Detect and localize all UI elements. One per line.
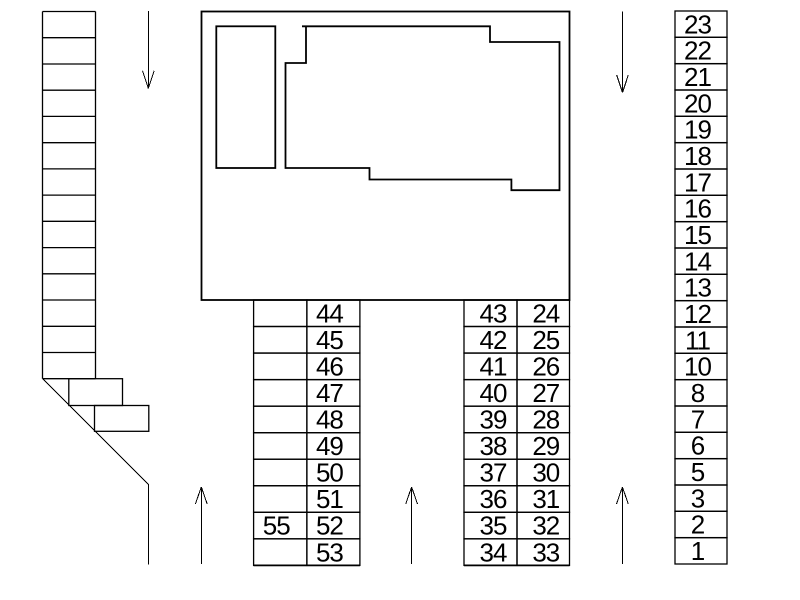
svg-text:41: 41 <box>480 352 507 382</box>
svg-text:36: 36 <box>480 484 507 514</box>
svg-text:32: 32 <box>532 511 559 541</box>
svg-text:47: 47 <box>316 378 343 408</box>
svg-text:49: 49 <box>316 431 343 461</box>
svg-text:34: 34 <box>480 537 507 567</box>
svg-text:42: 42 <box>480 325 507 355</box>
svg-text:1: 1 <box>691 536 705 566</box>
svg-text:26: 26 <box>532 352 559 382</box>
svg-text:48: 48 <box>316 405 343 435</box>
svg-text:43: 43 <box>480 298 507 328</box>
svg-text:46: 46 <box>316 352 343 382</box>
svg-text:52: 52 <box>316 511 343 541</box>
svg-text:31: 31 <box>532 484 559 514</box>
svg-text:39: 39 <box>480 405 507 435</box>
svg-text:30: 30 <box>532 458 559 488</box>
svg-text:51: 51 <box>316 484 343 514</box>
svg-text:50: 50 <box>316 458 343 488</box>
svg-text:24: 24 <box>532 298 559 328</box>
svg-text:53: 53 <box>316 537 343 567</box>
svg-text:33: 33 <box>532 537 559 567</box>
svg-text:28: 28 <box>532 405 559 435</box>
svg-text:44: 44 <box>316 298 343 328</box>
svg-text:27: 27 <box>532 378 559 408</box>
svg-text:40: 40 <box>480 378 507 408</box>
svg-text:55: 55 <box>263 511 290 541</box>
svg-text:38: 38 <box>480 431 507 461</box>
svg-text:25: 25 <box>532 325 559 355</box>
svg-text:35: 35 <box>480 511 507 541</box>
svg-text:29: 29 <box>532 431 559 461</box>
svg-text:45: 45 <box>316 325 343 355</box>
svg-text:37: 37 <box>480 458 507 488</box>
